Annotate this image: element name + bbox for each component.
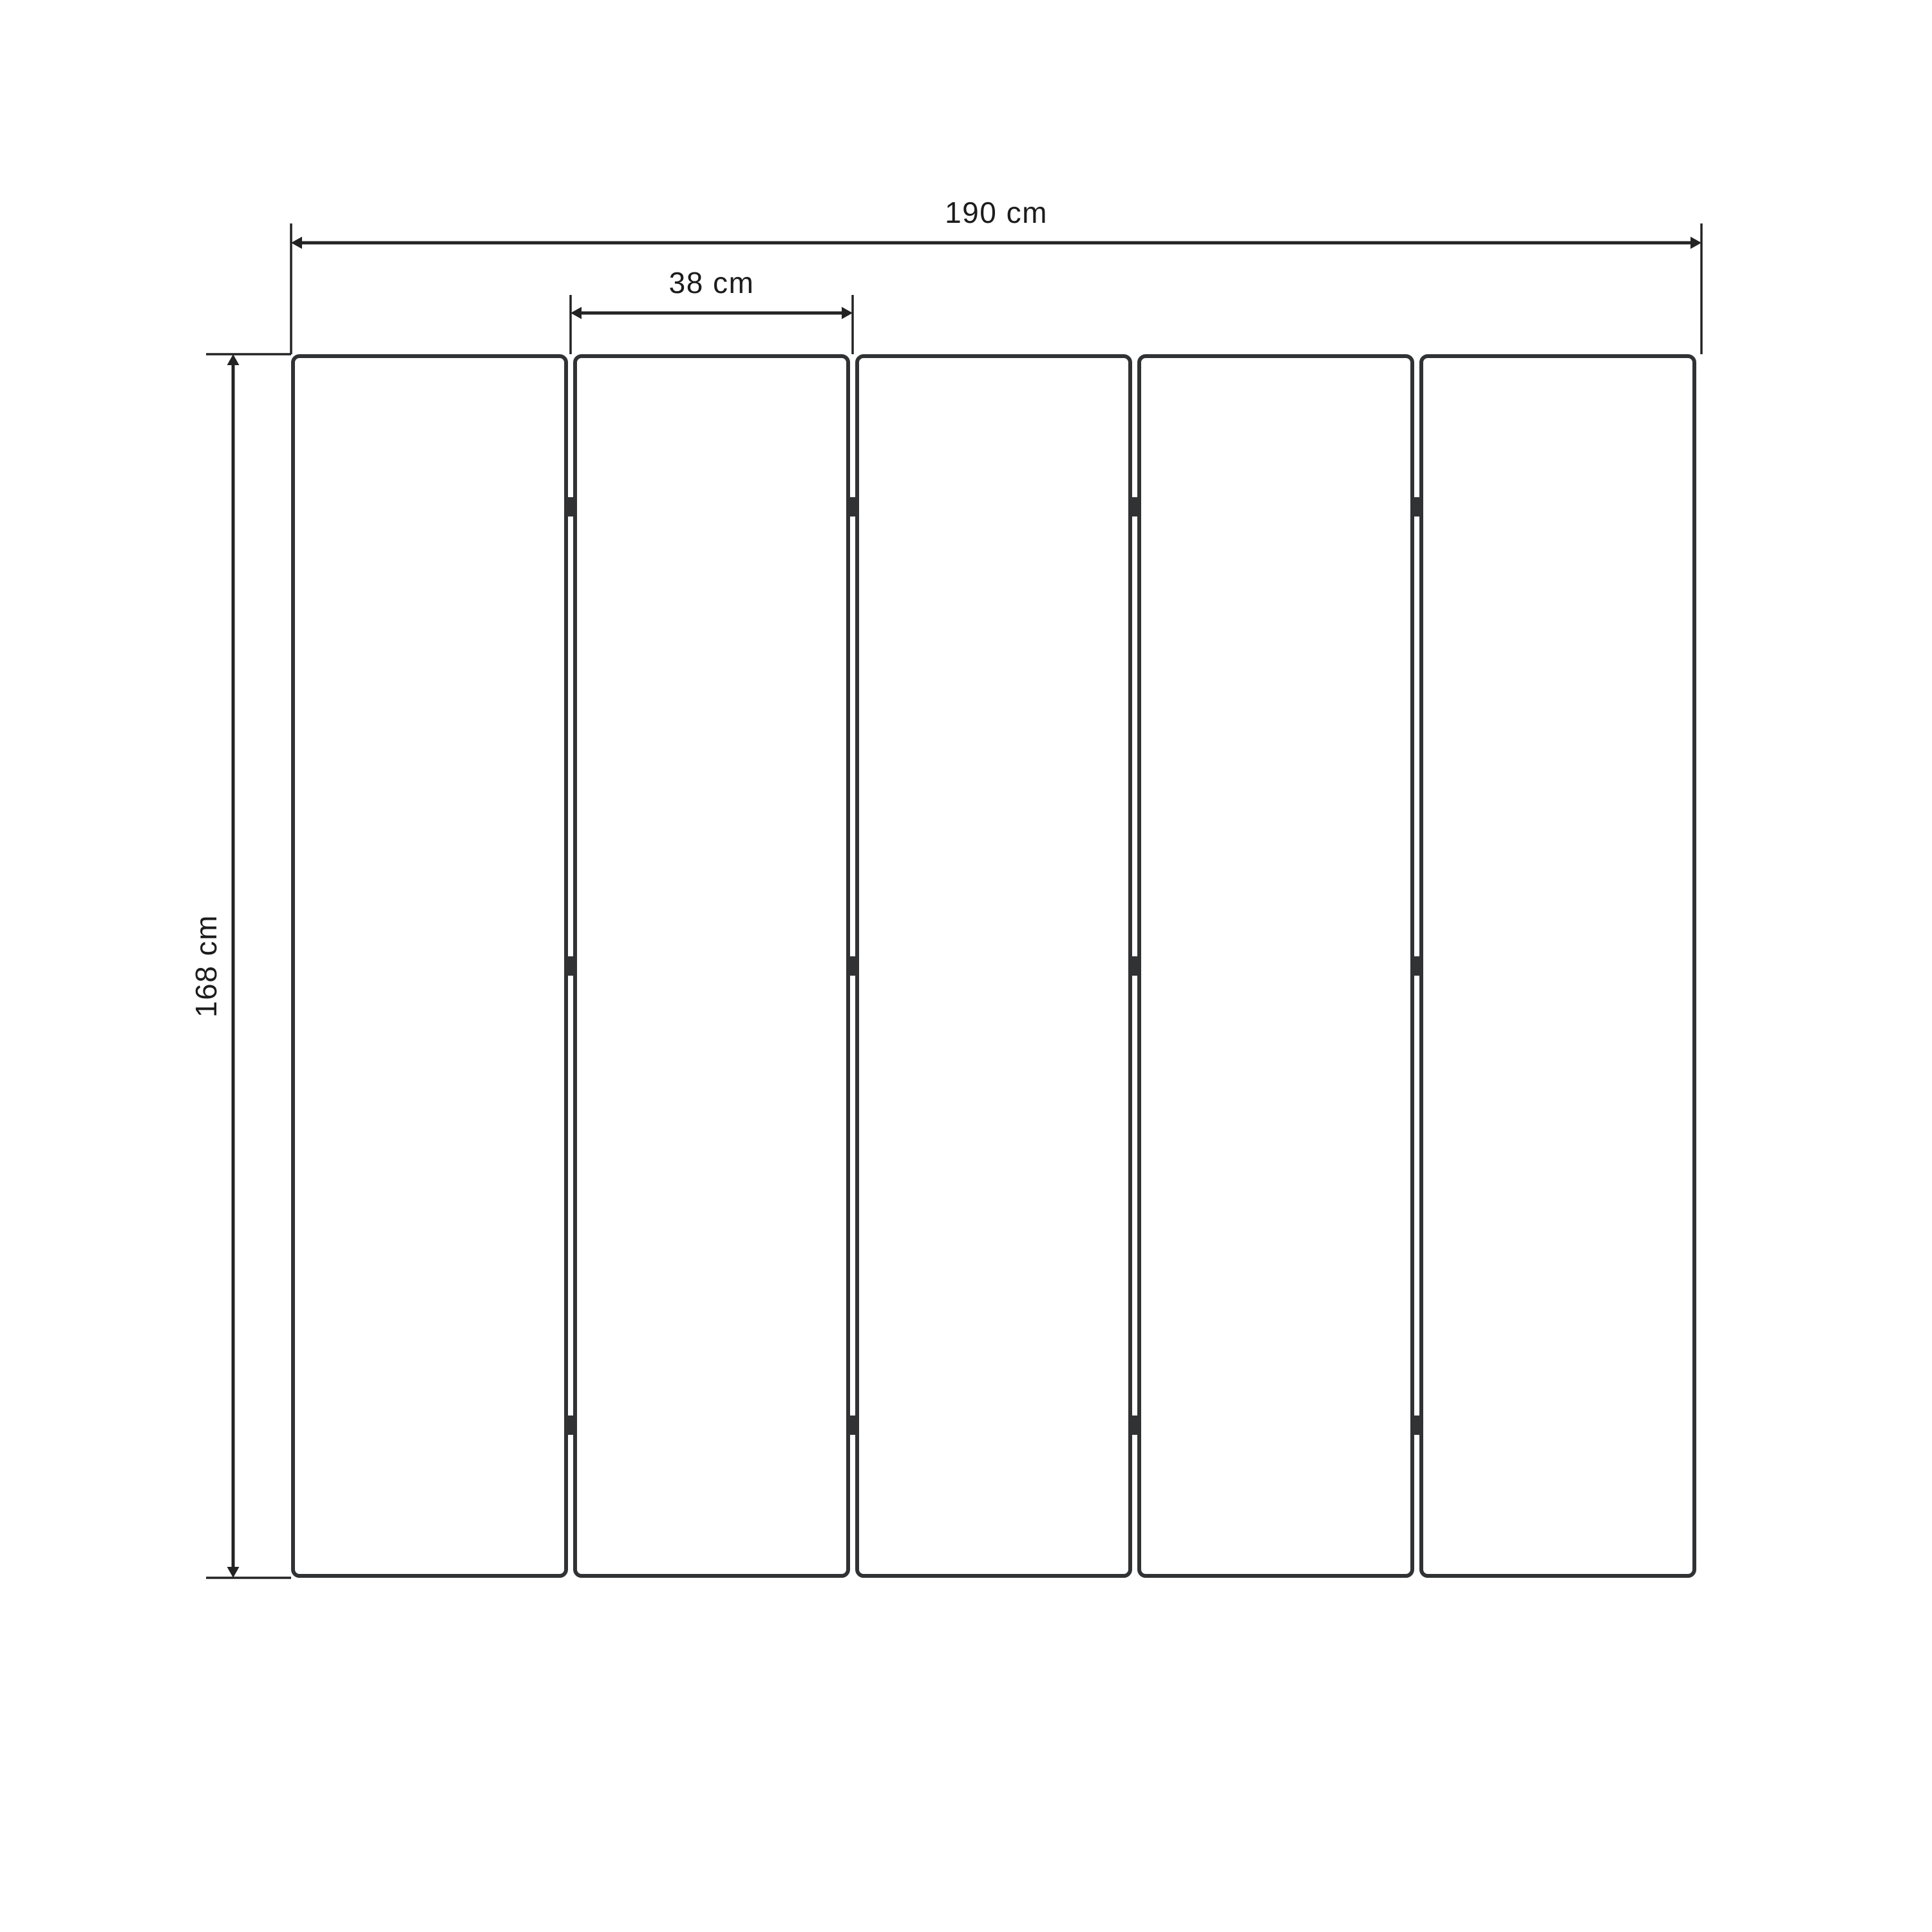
hinge [1131,1416,1139,1435]
arrowhead-left-icon [571,307,582,319]
hinge [1131,956,1139,976]
hinge [849,497,857,516]
dimension-panel-width: 38 cm [571,266,853,354]
panel-2 [575,356,848,1576]
hinge [1413,497,1421,516]
dimension-total-width: 190 cm [291,196,1701,354]
dim-label-panel-width: 38 cm [669,266,755,299]
arrowhead-right-icon [842,307,853,319]
arrowhead-down-icon [227,1567,240,1578]
hinge [849,956,857,976]
panels-group [293,356,1694,1576]
dim-label-height: 168 cm [189,914,223,1018]
diagram-canvas: 190 cm 38 cm 168 cm [0,0,1932,1932]
hinge [849,1416,857,1435]
panel-3 [857,356,1130,1576]
dim-label-total-width: 190 cm [945,196,1048,229]
arrowhead-right-icon [1690,237,1701,249]
hinge [567,1416,574,1435]
hinge [567,497,574,516]
hinge [1413,956,1421,976]
folding-screen-dimension-diagram: 190 cm 38 cm 168 cm [0,0,1932,1932]
arrowhead-left-icon [291,237,302,249]
arrowhead-up-icon [227,354,240,365]
panel-1 [293,356,566,1576]
panel-4 [1139,356,1412,1576]
hinge [1413,1416,1421,1435]
hinge [567,956,574,976]
panel-5 [1421,356,1694,1576]
dimension-height: 168 cm [189,354,291,1578]
hinge [1131,497,1139,516]
